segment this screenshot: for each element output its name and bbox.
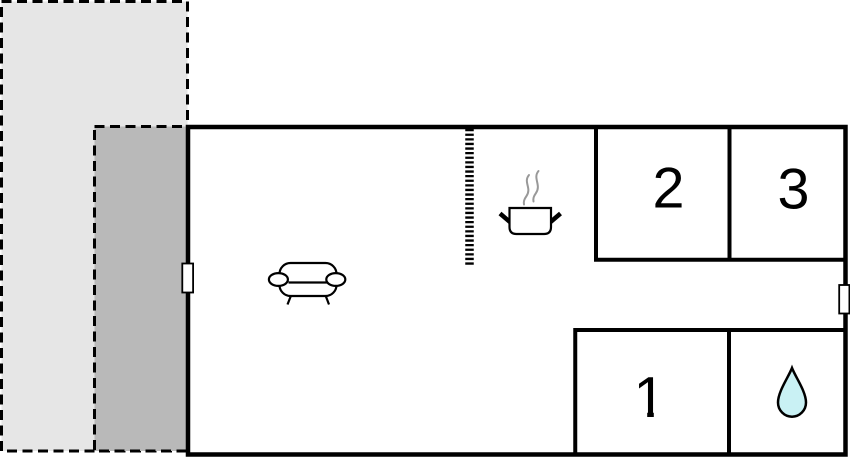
svg-text:3: 3 xyxy=(778,158,810,222)
svg-text:2: 2 xyxy=(653,157,685,221)
